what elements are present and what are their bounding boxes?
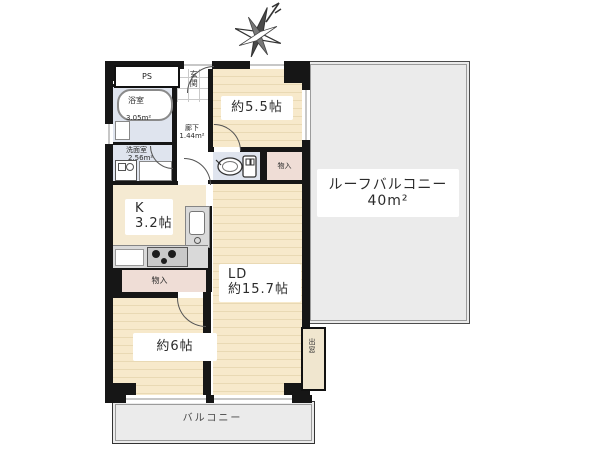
kitchen-sink-icon <box>185 206 210 248</box>
wall-ld-top <box>208 180 305 184</box>
bay-window-label: 出窓 <box>308 338 316 354</box>
living-dining-name: LD <box>228 268 247 283</box>
wall-bedroom55-bottom-b <box>240 147 305 152</box>
burner-1 <box>152 250 160 258</box>
pillar-top-right <box>284 61 310 83</box>
compass-north-icon <box>226 0 294 62</box>
pipe-space: PS <box>114 65 180 88</box>
bathroom-label: 浴室 <box>128 96 144 105</box>
living-dining-size: 約15.7帖 <box>228 283 289 298</box>
window-ld-balcony <box>214 395 292 403</box>
burner-2 <box>168 250 176 258</box>
wall-toilet-closet <box>260 150 267 183</box>
kitchen-name: K <box>135 202 145 217</box>
ld-door-arc <box>184 158 211 185</box>
corridor-label: 廊下 1.44m² <box>176 124 208 140</box>
stove-icon <box>147 247 188 267</box>
roof-balcony-label: ルーフバルコニー 40m² <box>317 169 459 217</box>
kitchen-size: 3.2帖 <box>135 217 173 232</box>
wall-kitchen-top <box>105 181 178 185</box>
window-top-bedroom55 <box>250 61 284 69</box>
sink-basin <box>189 211 205 235</box>
washer-drum <box>126 163 134 171</box>
wall-bath-wash <box>112 142 176 145</box>
window-bathroom <box>105 124 113 144</box>
counter-cabinet <box>115 249 144 266</box>
bedroom-5-5-label: 約5.5帖 <box>221 96 293 120</box>
balcony-label: バルコニー <box>112 413 313 425</box>
toilet-icon <box>215 155 258 178</box>
window-bedroom6-balcony <box>126 395 206 403</box>
bedroom-6-label: 約6帖 <box>133 333 217 361</box>
burner-3 <box>161 258 167 264</box>
kitchen-label: K 3.2帖 <box>125 199 173 235</box>
window-roof-balcony-access <box>302 90 310 140</box>
corridor-area: 1.44m² <box>176 132 208 140</box>
roof-balcony-area: 40m² <box>367 193 408 209</box>
wall-left <box>105 61 113 402</box>
bath-sink-icon <box>115 121 130 140</box>
pipe-space-label: PS <box>142 72 152 81</box>
hall-closet-label: 物入 <box>267 162 302 170</box>
living-dining-label: LD 約15.7帖 <box>219 264 301 302</box>
roof-balcony-name: ルーフバルコニー <box>329 177 448 193</box>
washer-dial <box>118 163 126 171</box>
corridor-name: 廊下 <box>176 124 208 132</box>
bay-window: 出窓 <box>301 327 326 391</box>
washing-machine-icon <box>115 160 137 181</box>
floor-plan: ルーフバルコニー 40m² バルコニー 出窓 <box>0 0 600 450</box>
sink-faucet <box>194 237 201 244</box>
washroom-label: 洗面室 <box>126 146 147 154</box>
kitchen-closet-label: 物入 <box>113 276 206 285</box>
